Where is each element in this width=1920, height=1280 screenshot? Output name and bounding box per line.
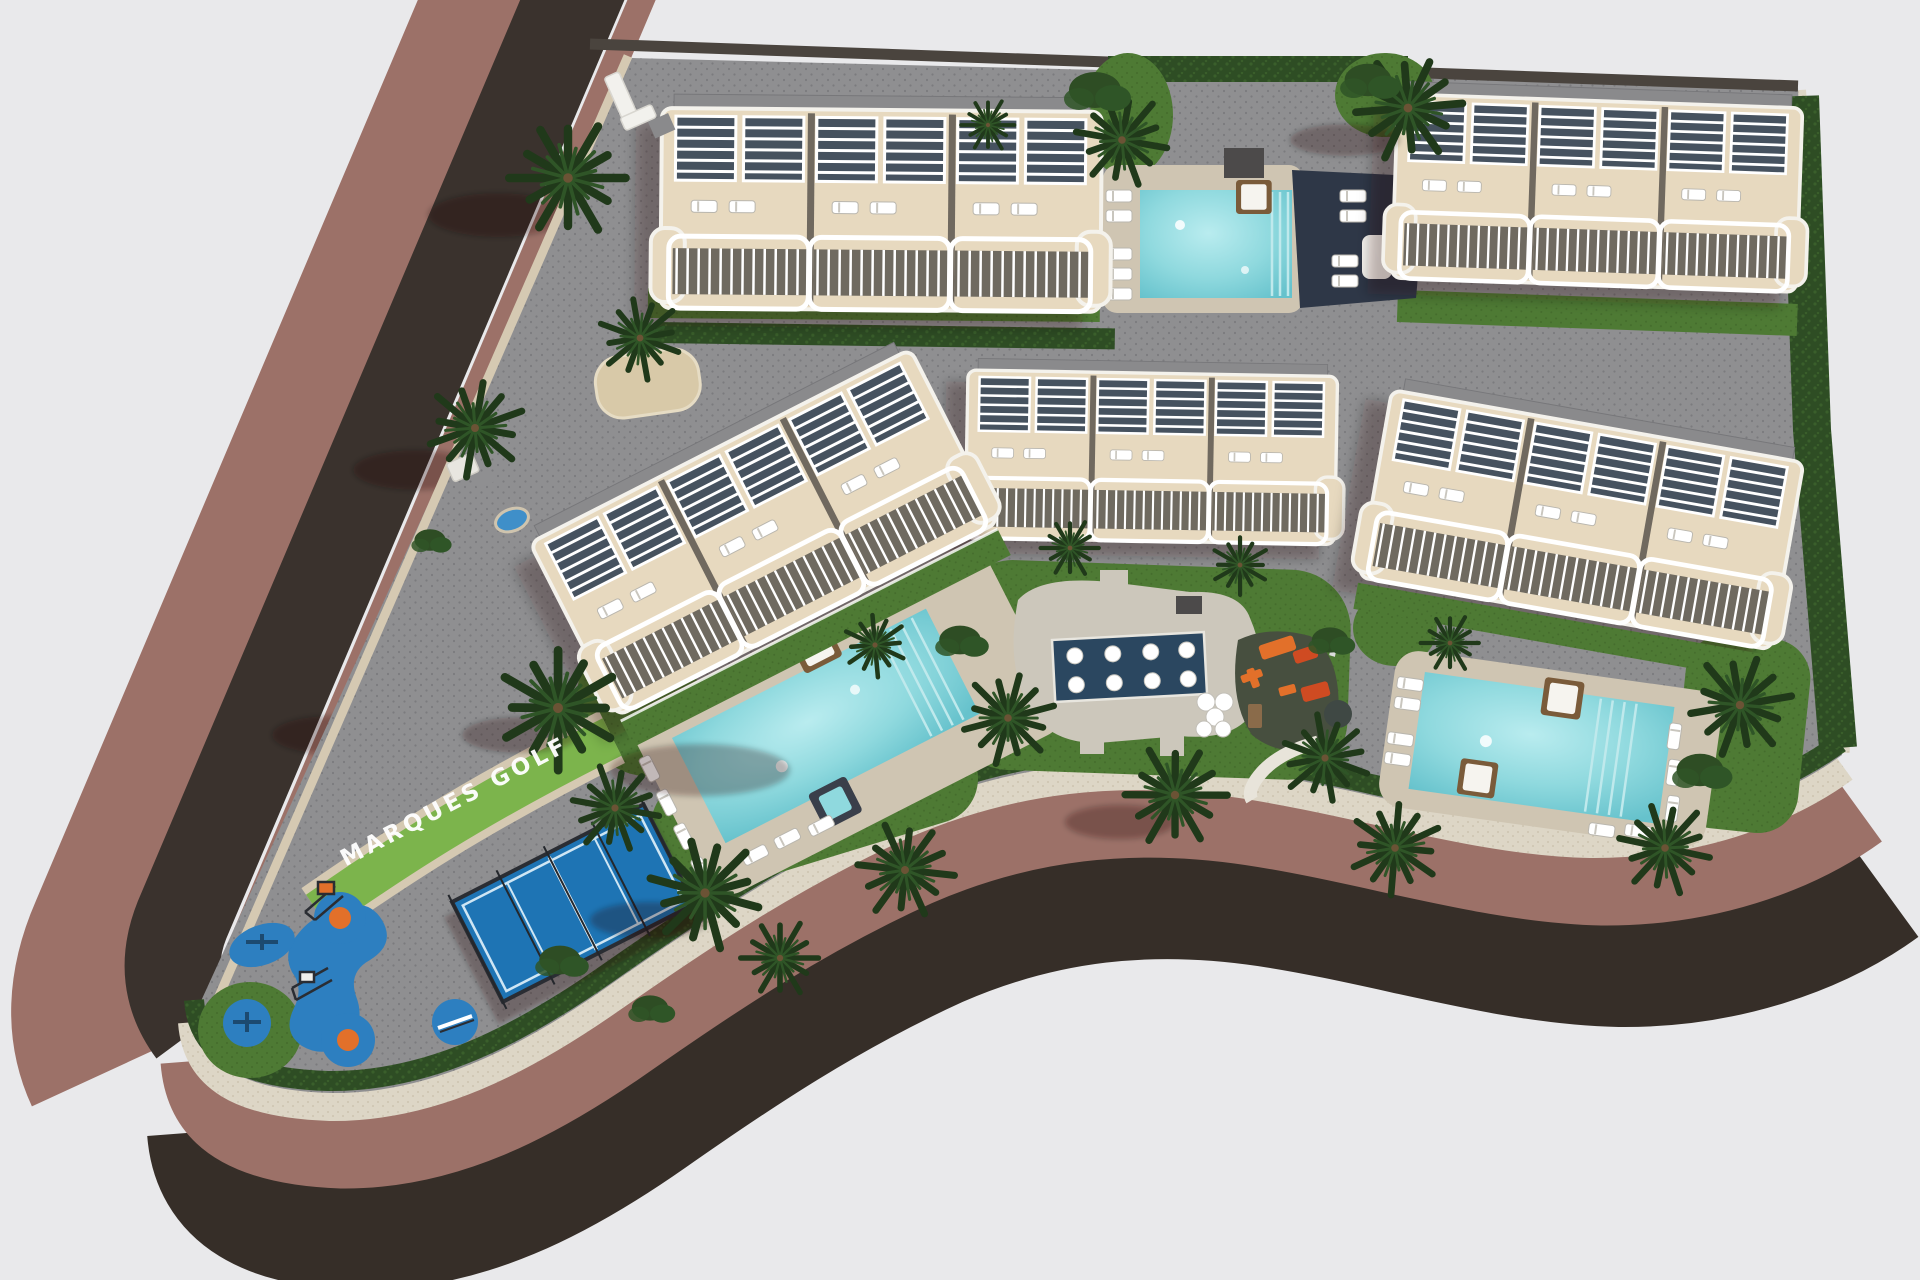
pool-daybed xyxy=(1456,758,1498,799)
plaza-arm xyxy=(1100,570,1128,600)
townhouse-block xyxy=(1382,81,1812,293)
site-plan-rendering: MARQUES GOLF xyxy=(0,0,1920,1280)
block-c xyxy=(943,358,1346,560)
pool-daybed xyxy=(1540,677,1585,720)
pergola xyxy=(1224,148,1264,178)
pergola xyxy=(1176,596,1202,614)
spa-plaza xyxy=(1014,570,1262,756)
block-b xyxy=(1367,80,1812,309)
bench xyxy=(1248,704,1262,728)
water-sparkle xyxy=(1241,266,1249,274)
climbing-dome xyxy=(329,907,351,929)
spa-pool xyxy=(1052,632,1207,702)
water-sparkle xyxy=(1175,220,1185,230)
palm-shadow xyxy=(610,744,790,796)
climbing-dome xyxy=(337,1029,359,1051)
block-a xyxy=(634,94,1112,330)
pool-daybed xyxy=(1236,180,1272,214)
masterplan-svg: MARQUES GOLF xyxy=(0,0,1920,1280)
townhouse-block xyxy=(957,358,1346,544)
townhouse-block xyxy=(650,94,1112,312)
plaza-arm xyxy=(1080,728,1104,754)
